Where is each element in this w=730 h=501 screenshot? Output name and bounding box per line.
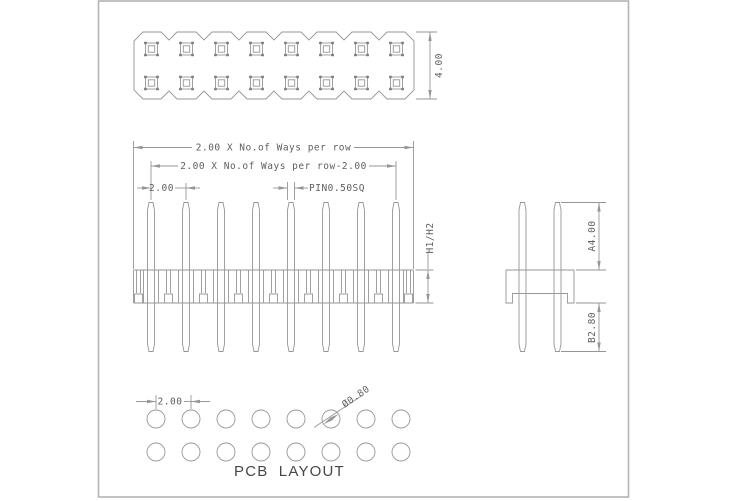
pcb-layout-title: PCB LAYOUT	[234, 463, 345, 480]
dim-total-width-label: 2.00 X No.of Ways per row	[196, 143, 352, 154]
dim-pin-size-label: PIN0.50SQ	[309, 183, 365, 194]
technical-drawing: 4.00 2.00 X No.of Ways per row 2.00 X No…	[0, 0, 730, 501]
dim-pin-above-label: A4.00	[587, 220, 598, 251]
page-frame	[99, 1, 629, 497]
dim-pitch-label: 2.00	[149, 183, 174, 194]
dim-pin-below-label: B2.80	[587, 312, 598, 343]
dim-body-height-label: H1/H2	[425, 222, 436, 253]
pcb-dim-pitch-label: 2.00	[158, 397, 183, 408]
dim-inner-width-label: 2.00 X No.of Ways per row-2.00	[180, 161, 367, 172]
drawing-canvas: 4.00 2.00 X No.of Ways per row 2.00 X No…	[0, 0, 730, 501]
dim-row-spacing-label: 4.00	[434, 53, 445, 78]
